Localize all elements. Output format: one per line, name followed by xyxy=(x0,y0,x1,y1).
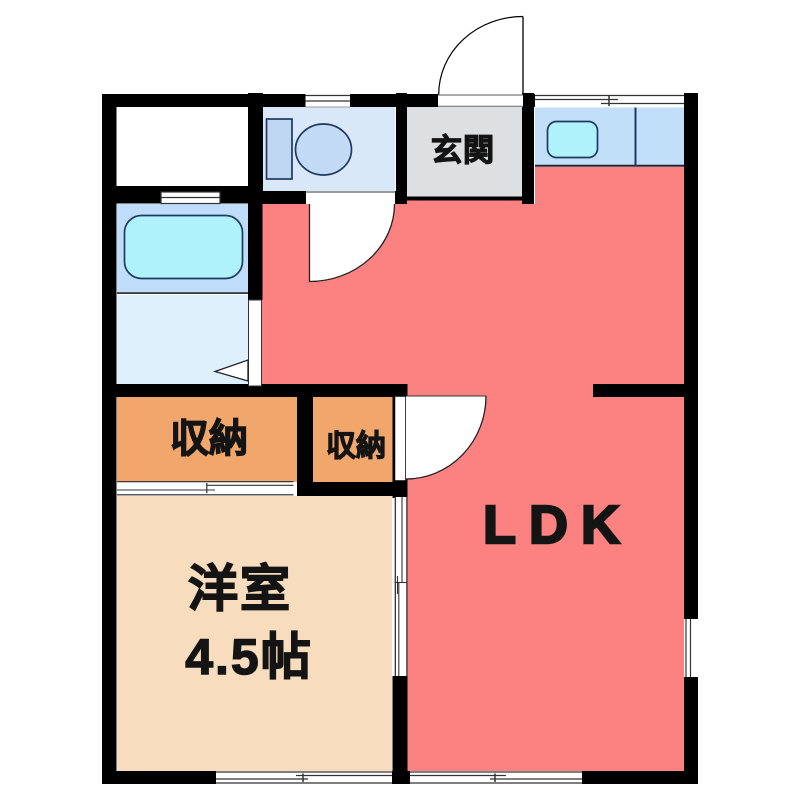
svg-text:4.5帖: 4.5帖 xyxy=(185,629,313,685)
svg-text:LDK: LDK xyxy=(483,495,633,555)
svg-text:収納: 収納 xyxy=(326,430,386,463)
svg-text:収納: 収納 xyxy=(170,418,248,461)
svg-text:洋室: 洋室 xyxy=(188,561,292,617)
svg-text:玄関: 玄関 xyxy=(431,133,495,168)
